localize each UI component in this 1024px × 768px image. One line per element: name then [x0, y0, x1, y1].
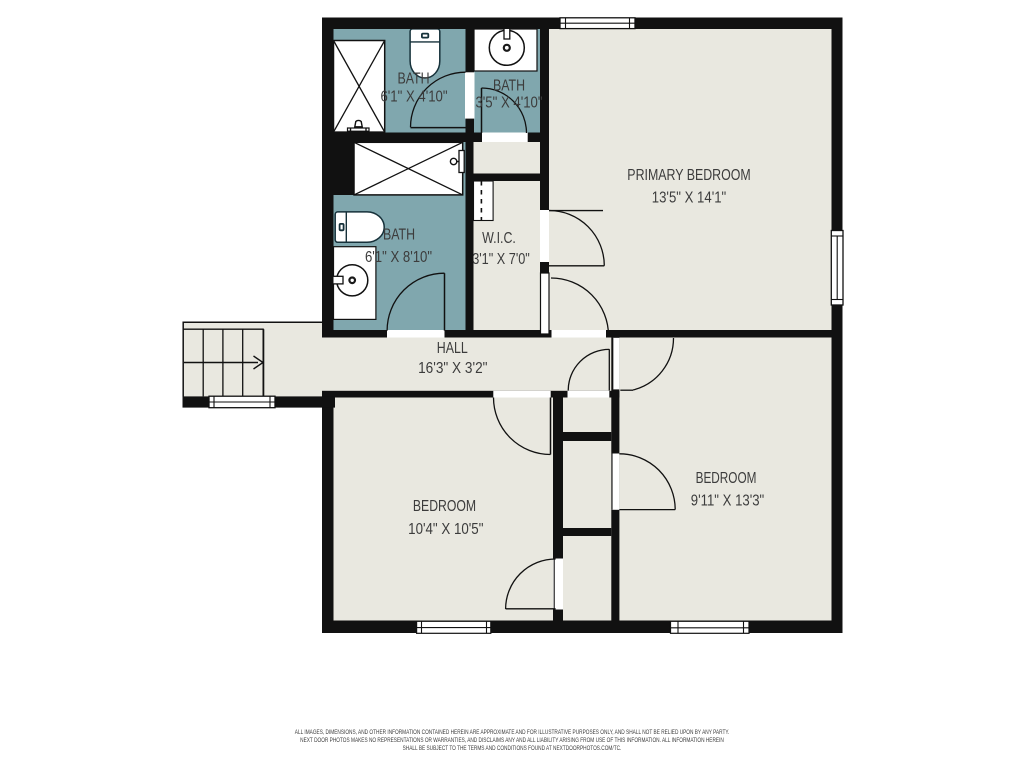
svg-text:BATH: BATH	[493, 76, 525, 94]
svg-text:6'1" X 4'10": 6'1" X 4'10"	[380, 89, 447, 106]
svg-text:BATH: BATH	[383, 225, 415, 243]
svg-text:NEXT DOOR PHOTOS MAKES NO REPR: NEXT DOOR PHOTOS MAKES NO REPRESENTATION…	[300, 738, 724, 745]
svg-text:3'1" X 7'0": 3'1" X 7'0"	[472, 251, 530, 268]
svg-text:BEDROOM: BEDROOM	[696, 469, 757, 486]
svg-text:BEDROOM: BEDROOM	[413, 497, 476, 515]
svg-text:HALL: HALL	[437, 339, 468, 357]
svg-text:SHALL BE SUBJECT TO THE TERMS: SHALL BE SUBJECT TO THE TERMS AND CONDIT…	[403, 746, 622, 753]
svg-text:BATH: BATH	[397, 69, 429, 87]
svg-text:W.I.C.: W.I.C.	[482, 229, 516, 247]
svg-text:6'1" X 8'10": 6'1" X 8'10"	[365, 249, 432, 266]
svg-text:16'3" X 3'2": 16'3" X 3'2"	[418, 360, 487, 377]
svg-text:13'5" X 14'1": 13'5" X 14'1"	[652, 190, 726, 207]
svg-text:10'4" X 10'5": 10'4" X 10'5"	[408, 521, 483, 538]
svg-text:9'11" X 13'3": 9'11" X 13'3"	[691, 493, 764, 510]
svg-text:PRIMARY BEDROOM: PRIMARY BEDROOM	[627, 166, 750, 184]
svg-text:3'5" X 4'10": 3'5" X 4'10"	[475, 95, 542, 112]
svg-text:ALL IMAGES, DIMENSIONS, AND OT: ALL IMAGES, DIMENSIONS, AND OTHER INFORM…	[295, 730, 730, 737]
